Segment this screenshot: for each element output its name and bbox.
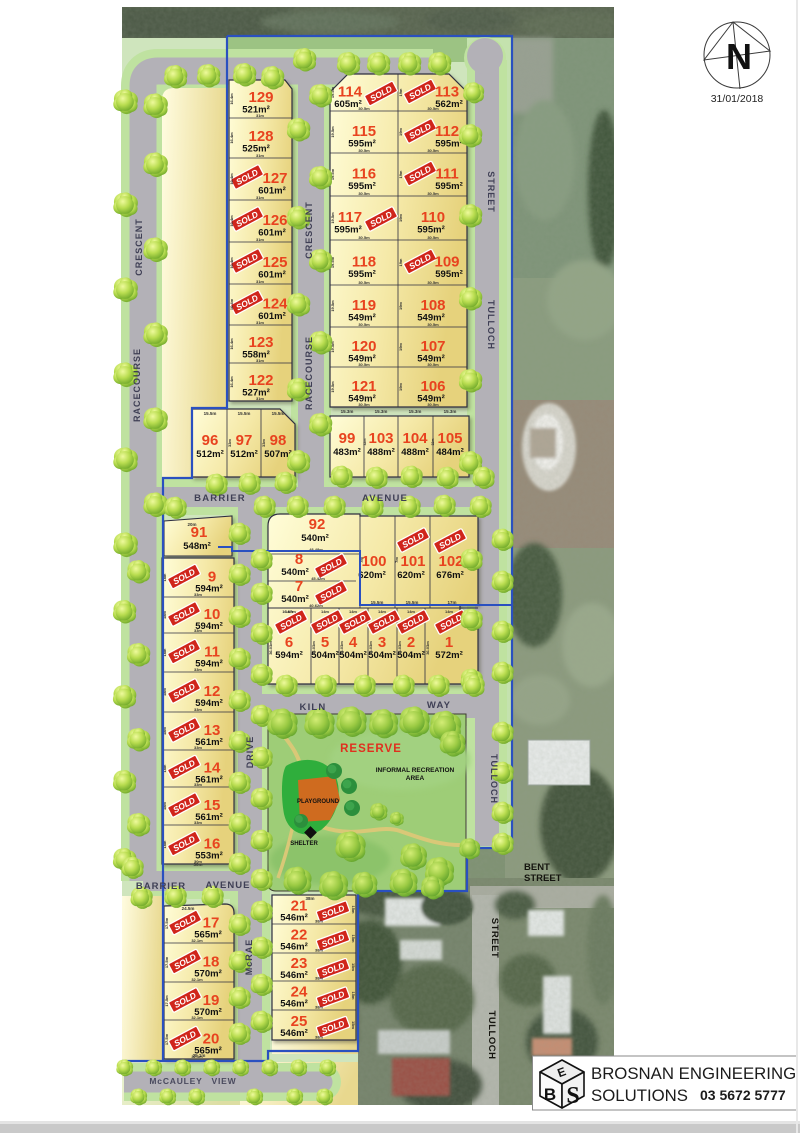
svg-text:03 5672 5777: 03 5672 5777 (700, 1087, 786, 1103)
svg-text:19.5m: 19.5m (330, 212, 335, 224)
svg-text:572m²: 572m² (435, 650, 462, 661)
svg-text:512m²: 512m² (196, 449, 223, 460)
svg-text:BARRIER: BARRIER (194, 493, 246, 504)
svg-text:19m: 19m (398, 88, 403, 96)
svg-text:32.1m: 32.1m (191, 977, 203, 982)
svg-text:20m: 20m (187, 522, 196, 527)
svg-text:31m: 31m (256, 153, 264, 158)
svg-text:19m: 19m (398, 302, 403, 310)
svg-text:38m: 38m (305, 896, 314, 901)
svg-text:122: 122 (248, 372, 273, 389)
svg-text:RACECOURSE: RACECOURSE (132, 348, 142, 422)
svg-text:INFORMAL RECREATION: INFORMAL RECREATION (376, 767, 455, 774)
svg-text:114: 114 (338, 84, 363, 101)
svg-text:112: 112 (435, 123, 459, 140)
svg-text:15.5m: 15.5m (272, 411, 285, 416)
svg-text:McRAE: McRAE (244, 939, 254, 976)
svg-text:25.1m: 25.1m (193, 1053, 206, 1058)
svg-text:17.5m: 17.5m (164, 956, 169, 968)
svg-text:33m: 33m (227, 439, 232, 447)
svg-text:104: 104 (402, 430, 428, 447)
svg-text:AVENUE: AVENUE (206, 880, 251, 891)
svg-text:595m²: 595m² (435, 181, 462, 192)
svg-text:19m: 19m (398, 214, 403, 222)
svg-text:McCAULEY: McCAULEY (149, 1076, 202, 1086)
svg-text:540m²: 540m² (281, 594, 308, 605)
svg-text:33m: 33m (194, 592, 202, 597)
svg-text:30.5m: 30.5m (427, 191, 439, 196)
svg-text:8: 8 (295, 551, 303, 568)
svg-text:B: B (544, 1085, 556, 1104)
svg-text:30.5m: 30.5m (358, 148, 370, 153)
svg-text:595m²: 595m² (435, 269, 462, 280)
svg-text:WAY: WAY (427, 700, 451, 711)
svg-text:16.4m: 16.4m (229, 93, 234, 105)
svg-text:128: 128 (248, 128, 273, 145)
svg-text:16.4m: 16.4m (229, 257, 234, 269)
svg-text:594m²: 594m² (275, 650, 302, 661)
svg-text:488m²: 488m² (367, 447, 394, 458)
svg-text:96: 96 (202, 432, 219, 449)
svg-text:15.3m: 15.3m (375, 409, 388, 414)
svg-text:107: 107 (420, 338, 445, 355)
svg-text:1: 1 (445, 634, 453, 651)
svg-text:17.5m: 17.5m (164, 917, 169, 929)
svg-text:102: 102 (438, 553, 463, 570)
svg-text:TULLOCH: TULLOCH (486, 1011, 497, 1060)
svg-text:AREA: AREA (406, 775, 425, 782)
svg-text:36.03m: 36.03m (397, 641, 402, 655)
svg-text:40.62m: 40.62m (309, 603, 323, 608)
svg-text:36.03m: 36.03m (368, 641, 373, 655)
svg-text:KILN: KILN (300, 702, 327, 713)
svg-text:38m: 38m (315, 1005, 323, 1010)
svg-text:595m²: 595m² (348, 269, 375, 280)
svg-text:33m: 33m (261, 439, 266, 447)
svg-text:118: 118 (352, 254, 376, 271)
svg-text:546m²: 546m² (280, 970, 307, 981)
svg-text:36.03m: 36.03m (268, 641, 273, 655)
svg-text:STREET: STREET (486, 171, 496, 213)
svg-text:15.5m: 15.5m (204, 411, 217, 416)
svg-text:100: 100 (361, 553, 386, 570)
svg-text:STREET: STREET (489, 918, 500, 958)
svg-text:119: 119 (352, 297, 376, 314)
svg-text:38m: 38m (315, 1035, 323, 1040)
svg-text:16.4m: 16.4m (229, 173, 234, 185)
svg-text:19m: 19m (398, 383, 403, 391)
svg-text:17.5m: 17.5m (164, 1033, 169, 1045)
svg-text:15.3m: 15.3m (341, 409, 354, 414)
svg-text:5: 5 (321, 634, 329, 651)
svg-text:17.5m: 17.5m (164, 995, 169, 1007)
svg-text:19.5m: 19.5m (330, 126, 335, 138)
svg-text:31m: 31m (256, 113, 264, 118)
svg-text:CRESCENT: CRESCENT (304, 201, 314, 259)
svg-text:STREET: STREET (524, 873, 562, 884)
svg-text:540m²: 540m² (281, 567, 308, 578)
svg-text:16.4m: 16.4m (229, 298, 234, 310)
svg-text:30.5m: 30.5m (358, 191, 370, 196)
svg-text:30.5m: 30.5m (427, 402, 439, 407)
svg-text:562m²: 562m² (435, 99, 462, 110)
svg-text:595m²: 595m² (435, 139, 462, 150)
svg-text:32m: 32m (363, 438, 367, 445)
svg-text:BENT: BENT (524, 862, 550, 873)
svg-text:30.5m: 30.5m (358, 362, 370, 367)
svg-text:121: 121 (351, 378, 376, 395)
svg-text:113: 113 (435, 84, 459, 101)
svg-text:3: 3 (378, 634, 386, 651)
svg-text:S: S (566, 1083, 579, 1109)
svg-text:540m²: 540m² (301, 533, 328, 544)
svg-text:30.5m: 30.5m (358, 235, 370, 240)
svg-text:30.5m: 30.5m (358, 402, 370, 407)
svg-text:116: 116 (352, 166, 376, 183)
svg-text:16.4m: 16.4m (229, 338, 234, 350)
svg-text:620m²: 620m² (397, 570, 424, 581)
svg-text:4: 4 (349, 634, 358, 651)
svg-text:120: 120 (351, 338, 376, 355)
svg-text:16.4m: 16.4m (229, 215, 234, 227)
svg-text:BARRIER: BARRIER (136, 881, 186, 892)
svg-text:19.5m: 19.5m (330, 300, 335, 312)
svg-text:101: 101 (400, 553, 425, 570)
svg-text:127: 127 (262, 170, 287, 187)
svg-text:31m: 31m (256, 237, 264, 242)
svg-text:30.5m: 30.5m (358, 280, 370, 285)
svg-text:38m: 38m (315, 919, 323, 924)
svg-text:105: 105 (437, 430, 462, 447)
svg-text:31m: 31m (256, 358, 264, 363)
svg-text:AVENUE: AVENUE (362, 493, 408, 504)
svg-text:15.3m: 15.3m (444, 409, 457, 414)
svg-text:38m: 38m (315, 976, 323, 981)
svg-text:31m: 31m (256, 320, 264, 325)
svg-text:30.5m: 30.5m (427, 280, 439, 285)
svg-text:620m²: 620m² (358, 570, 385, 581)
svg-text:30.5m: 30.5m (358, 322, 370, 327)
svg-text:30.5m: 30.5m (427, 106, 439, 111)
svg-text:98: 98 (270, 432, 287, 449)
svg-text:484m²: 484m² (436, 447, 463, 458)
svg-text:2: 2 (407, 634, 415, 651)
svg-text:546m²: 546m² (280, 999, 307, 1010)
svg-text:15m: 15m (351, 1021, 356, 1029)
svg-text:19m: 19m (398, 343, 403, 351)
svg-text:483m²: 483m² (333, 447, 360, 458)
svg-text:32.1m: 32.1m (191, 938, 203, 943)
svg-text:14m: 14m (445, 609, 453, 614)
svg-text:488m²: 488m² (401, 447, 428, 458)
svg-text:123: 123 (248, 334, 273, 351)
svg-text:19m: 19m (398, 258, 403, 266)
svg-text:19m: 19m (398, 128, 403, 136)
svg-text:N: N (726, 36, 752, 77)
svg-text:115: 115 (352, 123, 376, 140)
svg-text:32.1m: 32.1m (191, 1015, 203, 1020)
svg-text:129: 129 (248, 89, 273, 106)
svg-text:16.4m: 16.4m (229, 132, 234, 144)
svg-text:126: 126 (262, 212, 287, 229)
svg-text:19m: 19m (398, 170, 403, 178)
svg-text:16.4m: 16.4m (229, 376, 234, 388)
svg-text:30m: 30m (193, 862, 202, 867)
svg-text:30.5m: 30.5m (427, 235, 439, 240)
svg-text:33m: 33m (194, 820, 202, 825)
svg-text:RACECOURSE: RACECOURSE (304, 336, 314, 410)
svg-text:TULLOCH: TULLOCH (489, 754, 499, 804)
svg-text:676m²: 676m² (436, 570, 463, 581)
svg-text:19.5m: 19.5m (330, 381, 335, 393)
svg-text:38m: 38m (315, 948, 323, 953)
svg-text:6: 6 (285, 634, 293, 651)
svg-text:108: 108 (420, 297, 445, 314)
svg-text:36.03m: 36.03m (311, 641, 316, 655)
svg-text:117: 117 (338, 209, 362, 226)
svg-text:110: 110 (421, 209, 445, 226)
svg-text:33m: 33m (194, 667, 202, 672)
svg-text:33m: 33m (194, 707, 202, 712)
svg-text:14m: 14m (349, 609, 357, 614)
svg-text:32m: 32m (431, 438, 435, 445)
svg-text:SHELTER: SHELTER (290, 841, 318, 847)
svg-text:VIEW: VIEW (212, 1076, 237, 1086)
svg-text:14m: 14m (378, 609, 386, 614)
svg-text:125: 125 (262, 254, 287, 271)
svg-text:TULLOCH: TULLOCH (486, 300, 496, 350)
svg-text:103: 103 (368, 430, 393, 447)
svg-text:124: 124 (262, 296, 288, 313)
svg-text:546m²: 546m² (280, 1028, 307, 1039)
svg-text:PLAYGROUND: PLAYGROUND (297, 799, 340, 805)
svg-text:30.5m: 30.5m (427, 362, 439, 367)
svg-text:15m: 15m (351, 934, 356, 942)
svg-text:DRIVE: DRIVE (245, 736, 255, 769)
svg-text:15m: 15m (351, 905, 356, 913)
svg-text:BROSNAN ENGINEERING: BROSNAN ENGINEERING (591, 1064, 796, 1083)
svg-text:33m: 33m (194, 628, 202, 633)
svg-text:109: 109 (434, 254, 459, 271)
svg-text:31/01/2018: 31/01/2018 (711, 93, 764, 105)
svg-text:546m²: 546m² (280, 913, 307, 924)
svg-text:99: 99 (339, 430, 356, 447)
svg-text:30.5m: 30.5m (358, 106, 370, 111)
svg-text:15m: 15m (351, 991, 356, 999)
svg-text:RESERVE: RESERVE (340, 743, 402, 755)
svg-text:15.5m: 15.5m (238, 411, 251, 416)
svg-text:30.5m: 30.5m (427, 148, 439, 153)
svg-text:24.5m: 24.5m (182, 906, 195, 911)
svg-text:92: 92 (309, 516, 326, 533)
svg-text:16.67m: 16.67m (282, 609, 296, 614)
svg-text:111: 111 (435, 166, 458, 183)
svg-text:7: 7 (295, 578, 303, 595)
svg-text:36.03m: 36.03m (425, 641, 430, 655)
svg-text:SOLUTIONS: SOLUTIONS (591, 1086, 688, 1105)
svg-text:33m: 33m (194, 782, 202, 787)
svg-text:31m: 31m (256, 195, 264, 200)
svg-text:31m: 31m (256, 279, 264, 284)
svg-text:15.3m: 15.3m (409, 409, 422, 414)
svg-text:36.03m: 36.03m (339, 641, 344, 655)
svg-text:14m: 14m (407, 609, 415, 614)
svg-text:15m: 15m (351, 963, 356, 971)
svg-text:97: 97 (236, 432, 253, 449)
svg-text:31m: 31m (256, 396, 264, 401)
svg-text:548m²: 548m² (183, 541, 210, 552)
svg-text:512m²: 512m² (230, 449, 257, 460)
svg-text:7m: 7m (394, 557, 399, 563)
svg-text:45.42m: 45.42m (311, 576, 325, 581)
svg-text:546m²: 546m² (280, 942, 307, 953)
svg-text:CRESCENT: CRESCENT (134, 218, 144, 276)
svg-text:30.5m: 30.5m (427, 322, 439, 327)
svg-text:106: 106 (420, 378, 445, 395)
svg-text:33m: 33m (194, 745, 202, 750)
svg-text:14m: 14m (321, 609, 329, 614)
